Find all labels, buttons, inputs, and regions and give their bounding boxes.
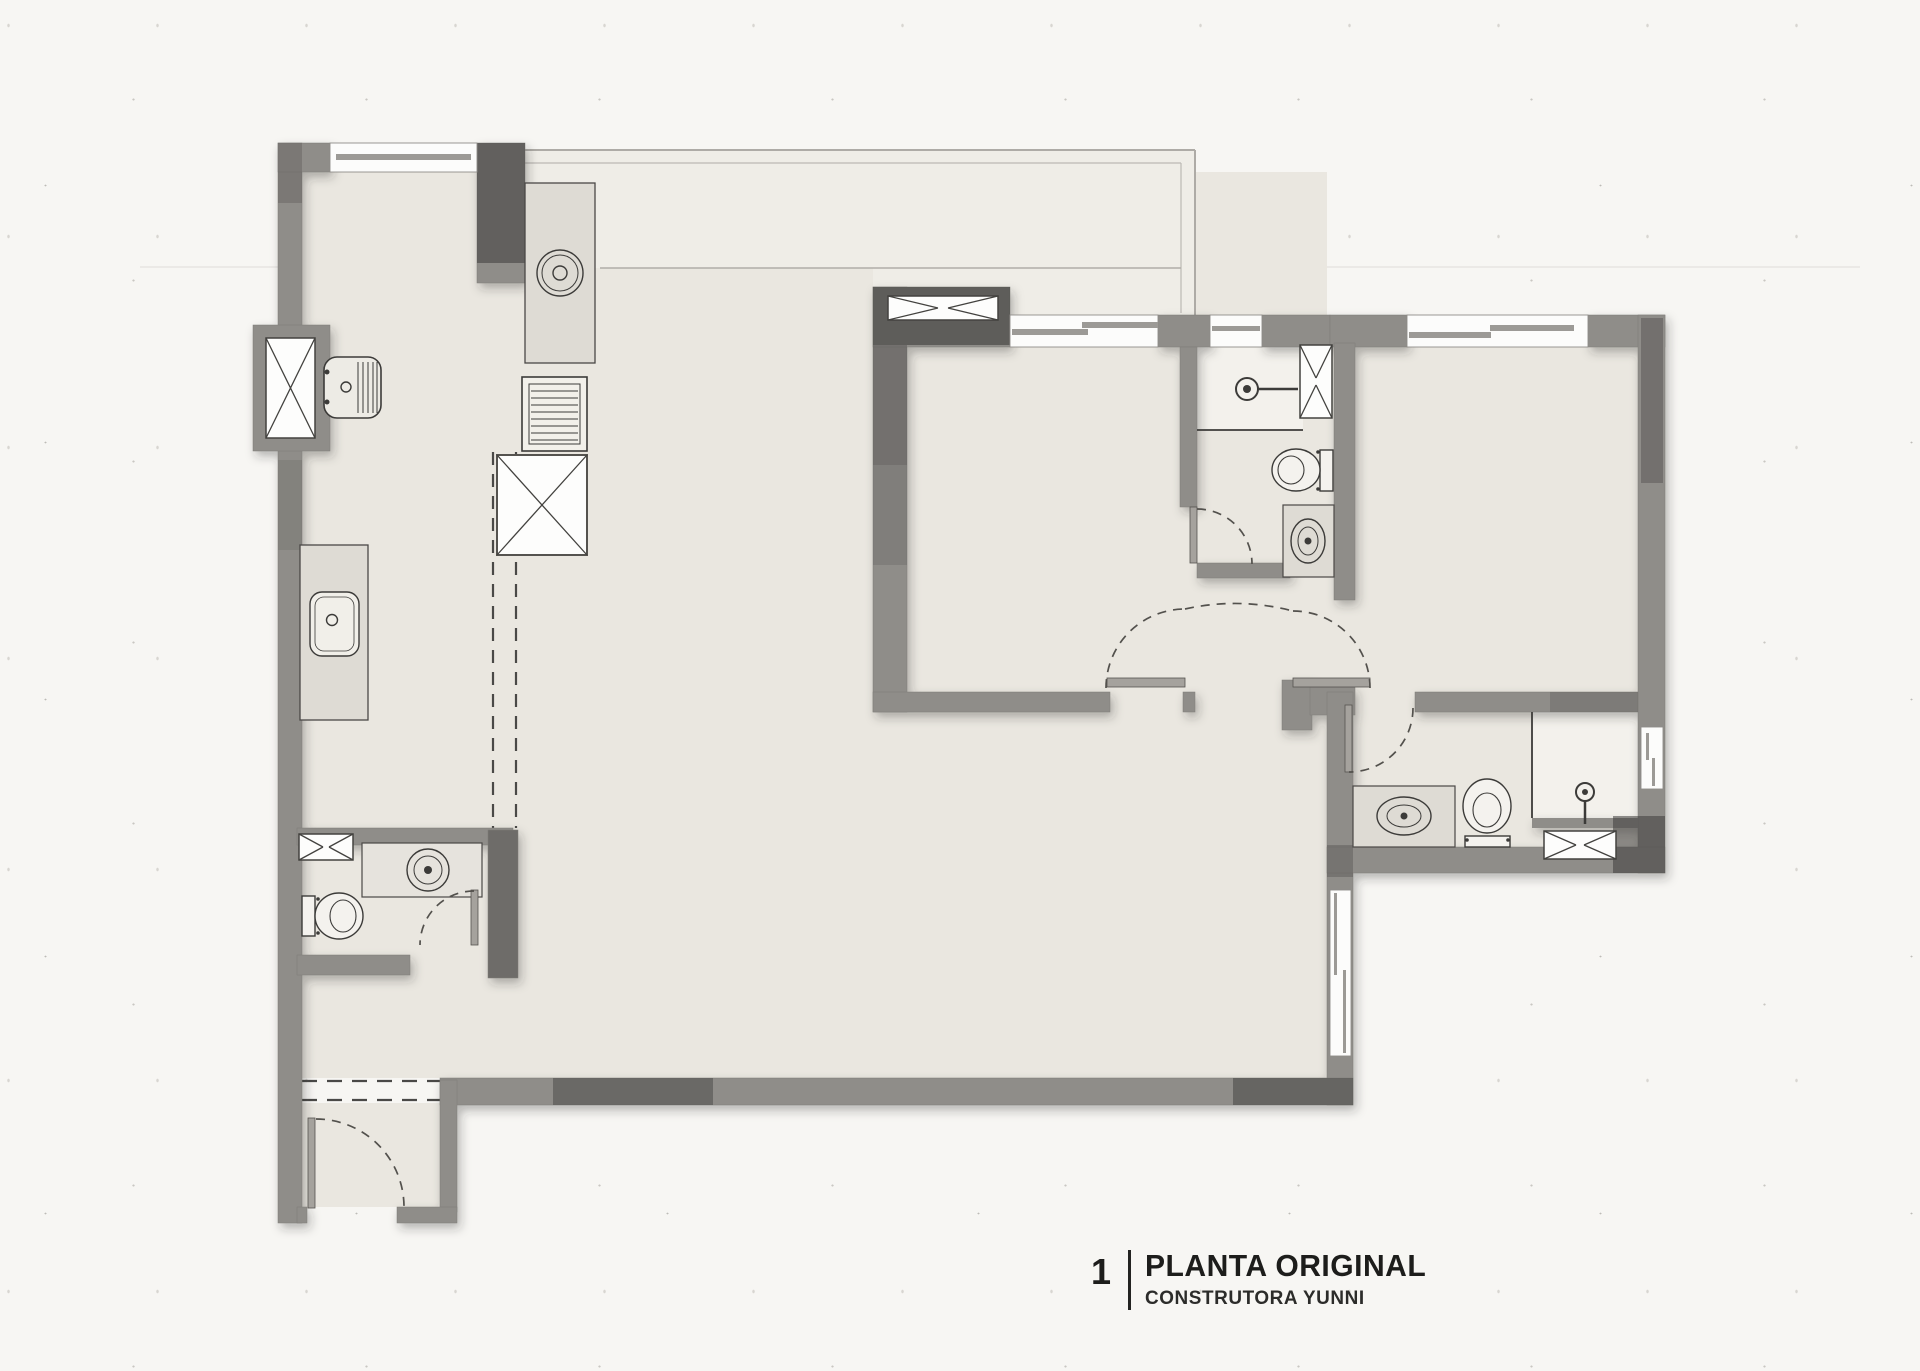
vanity-drain	[1305, 538, 1312, 545]
wall-bedroom1-door-stub	[1183, 692, 1195, 712]
toilet-bolt	[1316, 450, 1320, 454]
title-divider	[1128, 1250, 1131, 1310]
toilet-bowl-suite	[1463, 779, 1511, 833]
floor-plan-canvas	[0, 0, 1920, 1371]
wall-bath1-left	[1180, 347, 1197, 507]
wc-basin-drain	[424, 866, 432, 874]
window-bar	[1343, 970, 1346, 1053]
plan-number: 1	[1088, 1254, 1114, 1290]
toilet-bolt	[1506, 838, 1510, 842]
service-sink	[310, 592, 359, 656]
wall-patch	[278, 460, 302, 550]
laundry-tank-hinge	[325, 370, 330, 375]
toilet-tank-suite	[1465, 836, 1510, 847]
wc-basin-counter	[362, 843, 482, 897]
window-bar	[1646, 733, 1649, 760]
toilet-tank-bath1	[1320, 450, 1333, 491]
window-living-right	[1330, 890, 1351, 1056]
wall-left-outer	[278, 143, 302, 1223]
wall-bath1-bedroom2	[1334, 343, 1355, 600]
window-bar	[1409, 332, 1491, 338]
window-bar	[1490, 325, 1574, 331]
wall-patch	[1233, 1078, 1353, 1105]
toilet-bolt	[316, 897, 320, 901]
door-leaf-bedroom1	[1107, 678, 1185, 687]
laundry-tank-hinge	[325, 400, 330, 405]
entry-alcove-floor	[302, 1103, 457, 1207]
wall-kitchen-dark-block	[488, 830, 518, 978]
wall-patch	[1641, 318, 1663, 483]
wall-patch	[873, 345, 907, 465]
wall-patch	[1327, 845, 1353, 877]
shower-head-suite-dot	[1582, 789, 1588, 795]
wall-wc-bottom	[297, 955, 410, 975]
floor-plan-page: 1 PLANTA ORIGINAL CONSTRUTORA YUNNI	[0, 0, 1920, 1371]
plan-title: PLANTA ORIGINAL	[1145, 1248, 1426, 1284]
door-leaf-suite-bath	[1345, 705, 1352, 772]
laundry-tank	[324, 357, 381, 418]
window-bar	[1334, 893, 1337, 975]
window-bar	[1012, 329, 1088, 335]
plan-subtitle: CONSTRUTORA YUNNI	[1145, 1287, 1426, 1310]
kitchen-counter	[525, 183, 595, 363]
wall-pier-bath1	[1262, 315, 1330, 347]
door-leaf-bedroom2	[1293, 678, 1370, 687]
wall-pier-bedroom1-window	[1158, 315, 1210, 347]
wall-entry-bottom-right	[397, 1207, 457, 1223]
toilet-bolt	[316, 931, 320, 935]
toilet-tank-wc	[302, 896, 315, 936]
window-bar	[336, 154, 471, 160]
toilet-bowl-bath1	[1272, 449, 1320, 491]
toilet-bolt	[1465, 838, 1469, 842]
wall-bath1-bottom-stub	[1197, 563, 1290, 578]
wall-patch	[278, 143, 302, 203]
wall-entry-bottom-left	[297, 1207, 307, 1223]
wall-entry-right	[440, 1080, 457, 1212]
wall-pier-bedroom2	[1330, 315, 1407, 347]
wall-patch	[553, 1078, 713, 1105]
wall-patch	[1613, 816, 1665, 873]
wall-patch	[1550, 692, 1638, 712]
wall-bedroom1-bottom	[873, 692, 1110, 712]
window-bar	[1212, 326, 1260, 331]
balcony-floor	[525, 150, 1195, 268]
door-leaf-wc	[471, 890, 478, 945]
wall-patch	[873, 465, 907, 565]
door-leaf-bath1	[1190, 507, 1197, 563]
vanity-drain	[1401, 813, 1408, 820]
toilet-bolt	[1316, 487, 1320, 491]
door-leaf-entry	[308, 1118, 315, 1208]
title-block: 1 PLANTA ORIGINAL CONSTRUTORA YUNNI	[1088, 1248, 1435, 1310]
wall-patch	[477, 143, 525, 263]
window-bar	[1652, 758, 1655, 786]
shower-head-bath1-dot	[1243, 385, 1251, 393]
wall-hall-stub	[1282, 680, 1312, 730]
window-bar	[1082, 322, 1158, 328]
